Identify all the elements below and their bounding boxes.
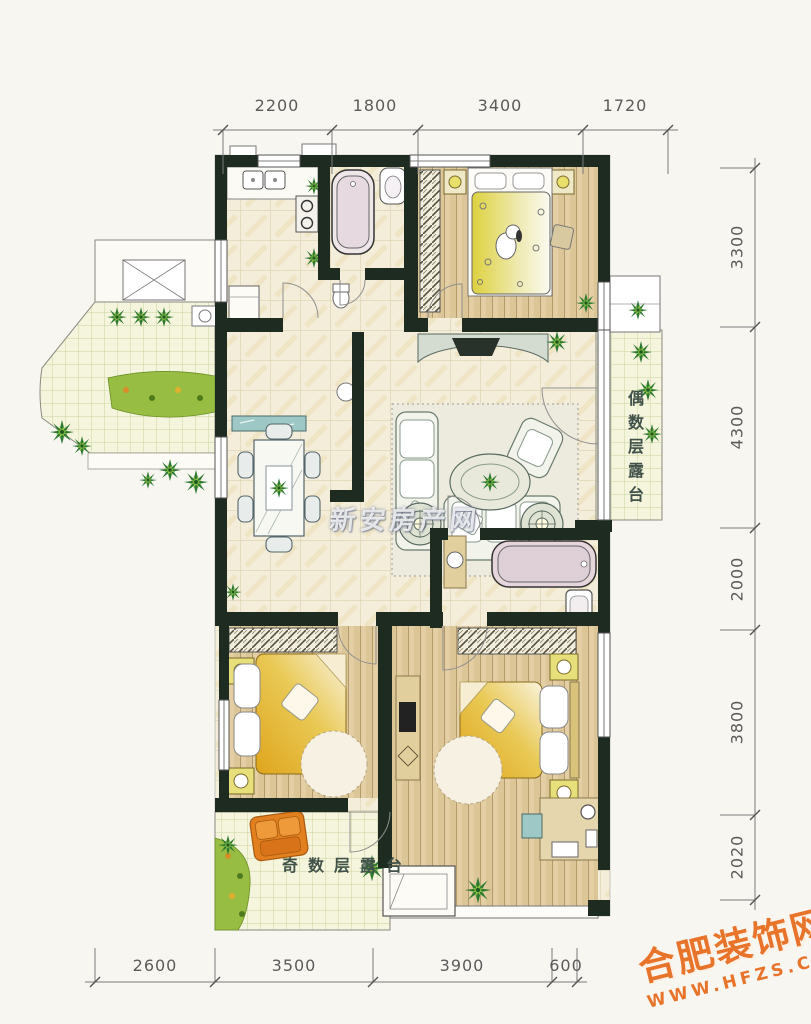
dim-right-1: 3300	[728, 225, 747, 270]
dim-right-4: 3800	[728, 700, 747, 745]
wardrobe-kids	[420, 170, 440, 312]
wardrobe-left	[229, 628, 337, 652]
dim-top-4: 1720	[603, 96, 648, 115]
floor-plan-page: 2200 1800 3400 1720 2600 3500 3900 600 3…	[0, 0, 811, 1024]
dim-bottom-4: 600	[549, 956, 583, 975]
rug-master	[434, 736, 502, 804]
label-terrace-odd: 奇数层露台	[282, 852, 412, 876]
dim-top-3: 3400	[478, 96, 523, 115]
wardrobe-master	[458, 628, 576, 654]
stove	[296, 196, 318, 232]
dim-top-2: 1800	[353, 96, 398, 115]
dim-right-2: 4300	[728, 405, 747, 450]
dim-bottom-3: 3900	[440, 956, 485, 975]
center-watermark: 新安房产网	[328, 500, 482, 537]
tv-master	[399, 702, 416, 732]
vanity-basin	[447, 552, 463, 568]
dim-right-3: 2000	[728, 557, 747, 602]
label-terrace-even: 偶数层露台	[622, 390, 646, 510]
dim-bottom-1: 2600	[133, 956, 178, 975]
dim-top-1: 2200	[255, 96, 300, 115]
dim-bottom-2: 3500	[272, 956, 317, 975]
kitchen-cabinet	[229, 286, 259, 320]
tv	[452, 338, 500, 356]
rug-left	[301, 731, 367, 797]
dim-right-5: 2020	[728, 835, 747, 880]
